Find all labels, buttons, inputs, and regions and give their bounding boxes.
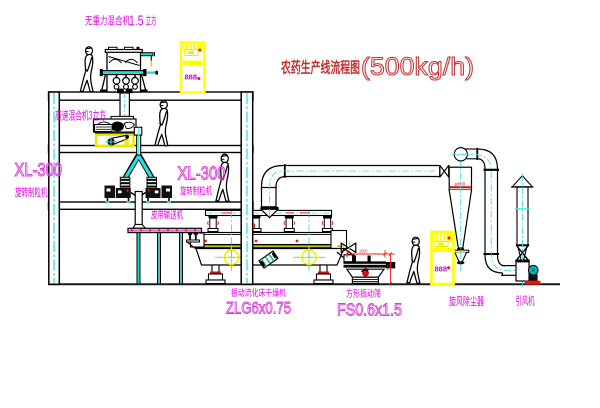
svg-text:XL-300: XL-300 <box>178 163 226 184</box>
svg-text:(500kg/h): (500kg/h) <box>361 53 474 81</box>
svg-text:745: 745 <box>386 264 391 271</box>
svg-text:1500: 1500 <box>359 248 368 253</box>
svg-text:旋转制粒机: 旋转制粒机 <box>15 185 48 199</box>
svg-text:农药生产线流程图: 农药生产线流程图 <box>280 59 360 77</box>
svg-text:888: 888 <box>185 73 198 82</box>
svg-text:φ800: φ800 <box>455 182 466 187</box>
svg-text:888: 888 <box>435 265 448 274</box>
svg-text:FS0.6x1.5: FS0.6x1.5 <box>337 300 402 320</box>
svg-text:振动流化床干燥机: 振动流化床干燥机 <box>231 287 286 298</box>
svg-text:旋风除尘器: 旋风除尘器 <box>449 294 484 308</box>
svg-text:无重力混合机: 无重力混合机 <box>85 14 130 27</box>
svg-text:ZLG6x0.75: ZLG6x0.75 <box>226 299 291 318</box>
svg-text:旋转制粒机: 旋转制粒机 <box>180 185 212 198</box>
svg-text:方形振动筛: 方形振动筛 <box>346 288 381 300</box>
svg-text:高速混合机3立方: 高速混合机3立方 <box>55 109 106 123</box>
svg-text:引风机: 引风机 <box>516 294 535 308</box>
svg-text:皮带输送机: 皮带输送机 <box>151 209 183 222</box>
svg-text:立方: 立方 <box>146 14 157 27</box>
svg-text:1.5: 1.5 <box>129 14 144 30</box>
svg-text:XL-300: XL-300 <box>15 159 63 180</box>
